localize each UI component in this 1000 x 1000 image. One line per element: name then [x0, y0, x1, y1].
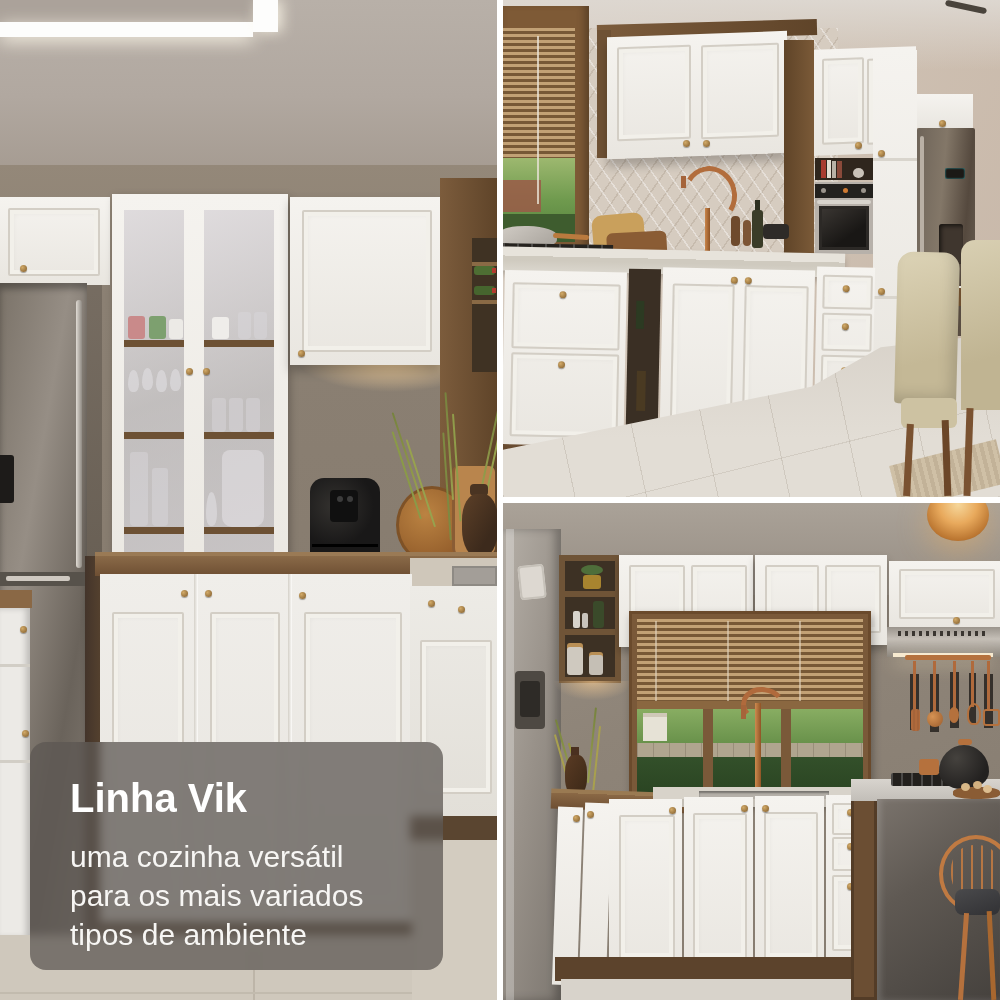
air-fryer-dial — [337, 496, 343, 502]
utensil-rail — [905, 655, 991, 660]
tumbler — [254, 312, 267, 339]
plinth — [555, 957, 875, 981]
island-wood-panel — [851, 791, 877, 1000]
cabinet-knob — [703, 140, 710, 147]
window-mullion — [703, 709, 713, 795]
ice-dispenser-recess — [520, 681, 540, 717]
blind-string — [655, 621, 657, 705]
book — [832, 161, 836, 178]
oven-display — [843, 188, 848, 193]
freezer-handle — [6, 576, 70, 581]
cabinet-knob — [878, 150, 885, 157]
ceiling-light-corner — [253, 0, 278, 32]
tumbler — [229, 398, 243, 432]
kitchen-collage: Linha Vik uma cozinha versátil para os m… — [0, 0, 1000, 1000]
fridge-display — [945, 168, 965, 179]
bowl — [853, 168, 864, 178]
dining-chair — [894, 251, 960, 405]
photo-kitchen-left: Linha Vik uma cozinha versátil para os m… — [0, 0, 497, 1000]
caption-subtitle-line: tipos de ambiente — [70, 915, 413, 954]
island-drawers — [0, 608, 30, 938]
dining-chair-partial — [961, 240, 1000, 410]
caption-card: Linha Vik uma cozinha versátil para os m… — [30, 742, 443, 970]
faucet-spout — [741, 705, 746, 719]
cabinet-knob — [186, 368, 193, 375]
photo-kitchen-bottom-right — [503, 503, 1000, 1000]
caption-subtitle-line: para os mais variados — [70, 876, 413, 915]
drawer-divide — [0, 664, 30, 667]
drawer-divide — [0, 760, 30, 763]
small-bottle — [573, 611, 580, 628]
faucet-spout — [681, 176, 686, 188]
fridge-handle — [76, 300, 82, 568]
door-panel — [899, 569, 995, 619]
copper-pot — [919, 759, 939, 775]
cabinet-knob — [181, 590, 188, 597]
door-panel — [619, 815, 675, 959]
wine-glass — [156, 370, 167, 392]
skimmer-head — [983, 709, 1000, 726]
cabinet-knob — [855, 142, 862, 149]
wine-glass — [142, 368, 153, 390]
fridge-display — [0, 455, 14, 503]
wood-column — [784, 40, 814, 254]
blind-cord — [537, 36, 539, 204]
tumbler — [238, 312, 251, 339]
tumbler — [212, 398, 226, 432]
cabinet-knob — [298, 350, 305, 357]
door-panel — [822, 57, 864, 144]
floor-grout — [0, 992, 412, 994]
caption-subtitle: uma cozinha versátil para os mais variad… — [70, 837, 413, 954]
small-bottle — [582, 613, 588, 628]
utensil-whisk — [971, 661, 974, 707]
ceiling-recess — [0, 0, 253, 22]
oven-dial — [861, 188, 866, 193]
door-panel — [764, 812, 818, 959]
ladle-head — [927, 711, 943, 727]
kettle-lid — [958, 739, 972, 745]
copper-faucet-stem — [755, 703, 761, 797]
hutch-shelf — [124, 340, 184, 347]
tall-glass — [152, 468, 168, 526]
glass-jar — [589, 655, 603, 675]
window-blinds — [503, 28, 575, 158]
cabinet-knob — [558, 361, 565, 368]
shelf-board — [472, 300, 497, 304]
cabinet-knob — [573, 815, 580, 822]
oven-door-glass — [819, 206, 869, 250]
house-in-view — [643, 717, 667, 741]
air-fryer-basket-seam — [312, 544, 378, 547]
cabinet-knob — [741, 805, 748, 812]
wine-glass — [128, 370, 139, 392]
hutch-shelf — [124, 527, 184, 534]
window-mullion — [781, 709, 791, 795]
pepper-mill — [743, 220, 751, 246]
island-wood-top — [0, 590, 32, 608]
fridge-highlight — [506, 529, 514, 1000]
book — [837, 161, 842, 178]
cookies — [961, 783, 970, 791]
book — [821, 160, 826, 178]
glass-jar — [567, 647, 583, 675]
utensil-spoon — [953, 661, 956, 711]
bottle-cap — [492, 268, 496, 273]
cabinet-knob — [20, 265, 27, 272]
oven-handle — [817, 200, 871, 204]
wood-tray — [953, 787, 1000, 799]
door-panel — [693, 813, 747, 959]
rack-bottle — [636, 371, 646, 411]
pink-mug — [128, 316, 145, 339]
cabinet-knob — [587, 811, 594, 818]
copper-faucet-stem — [705, 208, 710, 254]
hood-vent — [898, 631, 988, 636]
cabinet-knob — [428, 600, 435, 607]
blind-string — [799, 621, 801, 705]
pepper-mill — [731, 216, 740, 246]
glass-pitcher — [222, 450, 264, 527]
cabinet-knob — [205, 590, 212, 597]
light-switch — [517, 564, 546, 601]
tall-glass — [130, 452, 148, 526]
cabinet-knob — [22, 730, 29, 737]
utensil-skimmer — [987, 661, 990, 709]
door-panel — [701, 43, 779, 140]
cabinet-knob — [669, 807, 676, 814]
spoon-head — [949, 707, 959, 723]
spatula-head — [911, 709, 920, 731]
cabinet-knob — [762, 805, 769, 812]
succulent — [581, 565, 603, 575]
drawer-panel — [821, 313, 872, 352]
white-cup — [212, 317, 229, 339]
door-panel — [617, 45, 691, 142]
green-mug — [149, 316, 166, 339]
air-fryer-dial — [347, 496, 353, 502]
cabinet-knob — [559, 291, 566, 298]
oven-dial — [821, 188, 826, 193]
blind-string — [727, 621, 729, 705]
pot — [763, 224, 789, 239]
ceiling-light-strip — [0, 22, 253, 37]
cabinet-knob — [458, 606, 465, 613]
hutch-shelf — [124, 432, 184, 439]
under-shelf-glow — [549, 681, 637, 707]
cabinet-knob — [203, 368, 210, 375]
cabinet-knob — [939, 120, 946, 127]
caption-title: Linha Vik — [70, 776, 413, 820]
air-fryer-panel — [330, 490, 358, 522]
white-mug — [169, 319, 183, 339]
sink — [452, 566, 497, 586]
upper-cabinet-right-panel — [302, 210, 432, 352]
stool-seat — [955, 889, 1000, 915]
hutch-shelf — [204, 340, 274, 347]
brown-vase — [462, 494, 497, 558]
wine-glass — [170, 369, 181, 391]
green-bottle — [593, 601, 604, 628]
rack-bottle — [636, 301, 645, 329]
cabinet-knob — [20, 626, 27, 633]
drawer-panel — [822, 275, 873, 310]
floor — [561, 979, 875, 1000]
oil-bottle — [752, 210, 763, 248]
tumbler — [246, 398, 260, 432]
utensil-ladle — [933, 661, 936, 713]
gold-planter — [583, 575, 601, 589]
hutch-shelf — [204, 527, 274, 534]
pantry-divide — [873, 158, 917, 161]
cabinet-knob — [842, 323, 849, 330]
whisk-head — [967, 703, 981, 725]
photo-kitchen-top-right — [503, 0, 1000, 497]
cabinet-knob — [953, 617, 960, 624]
caption-subtitle-line: uma cozinha versátil — [70, 837, 413, 876]
book — [827, 160, 831, 178]
brick-wall — [503, 180, 541, 212]
cabinet-knob — [683, 140, 690, 147]
cabinet-knob — [299, 592, 306, 599]
hutch-shelf — [204, 432, 274, 439]
bottle-cap — [492, 288, 496, 293]
utensil-spatula — [913, 661, 916, 711]
open-shelf-niche — [472, 238, 497, 372]
